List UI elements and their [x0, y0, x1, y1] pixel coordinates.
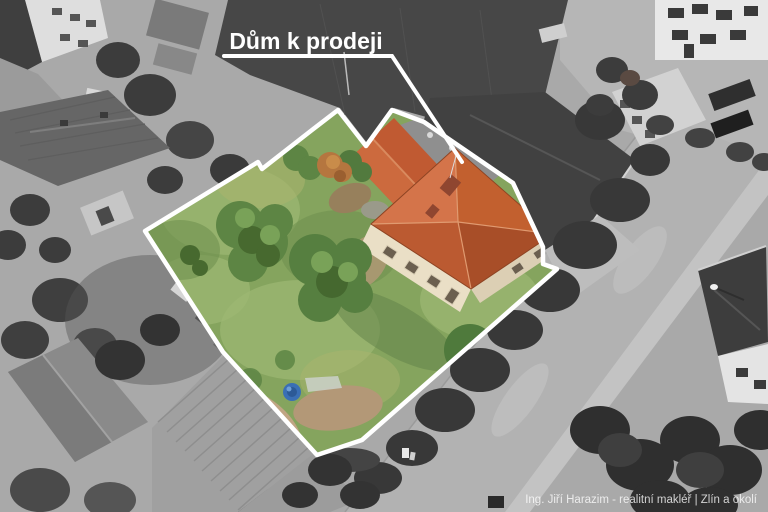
watermark-text: Ing. Jiří Harazim - realitní makléř | Zl…: [525, 494, 758, 506]
for-sale-label: Dům k prodeji: [229, 28, 382, 54]
street-lamp-head: [710, 284, 718, 290]
aerial-photo: Dům k prodeji Ing. Jiří Harazim - realit…: [0, 0, 768, 512]
blue-barrel: [283, 383, 301, 401]
car-on-road: [488, 496, 504, 508]
roadside-sign: [402, 448, 409, 458]
scene-canvas: Dům k prodeji Ing. Jiří Harazim - realit…: [0, 0, 768, 512]
